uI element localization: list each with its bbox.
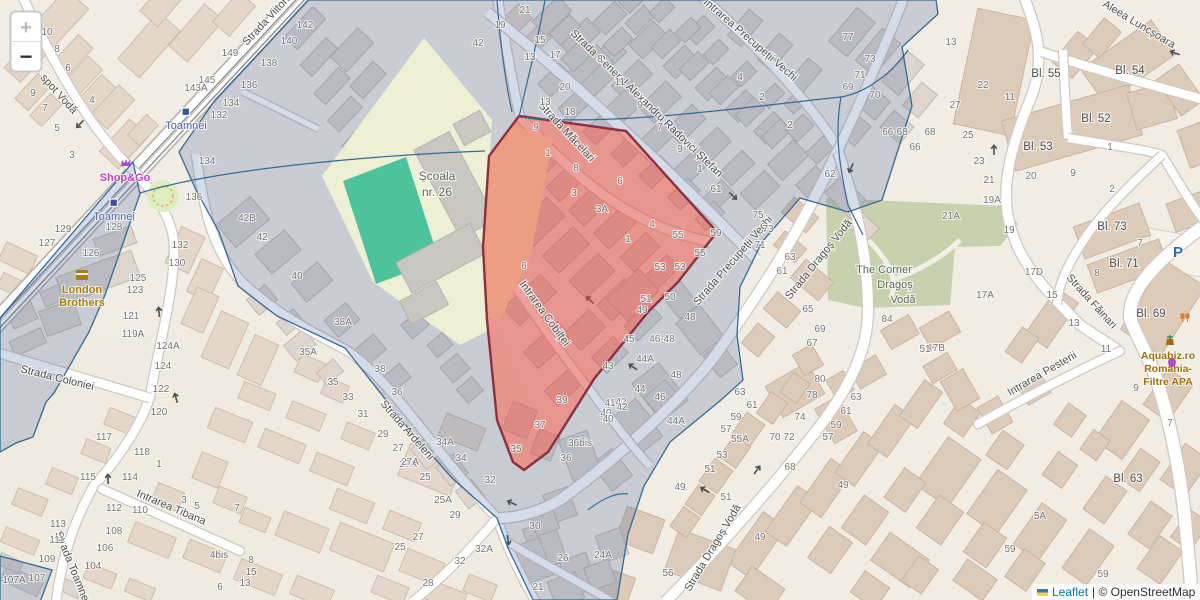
svg-text:53: 53 [674, 262, 686, 273]
svg-text:13: 13 [524, 52, 536, 63]
svg-text:3: 3 [571, 188, 577, 199]
svg-text:49: 49 [674, 482, 686, 493]
svg-text:48: 48 [684, 312, 696, 323]
svg-text:61: 61 [710, 184, 722, 195]
svg-text:117: 117 [96, 432, 112, 443]
svg-text:21A: 21A [942, 211, 960, 222]
svg-text:7: 7 [1167, 418, 1173, 429]
svg-text:11: 11 [1005, 92, 1016, 103]
svg-text:118: 118 [134, 447, 150, 458]
svg-text:40: 40 [291, 271, 303, 282]
svg-text:55A: 55A [731, 434, 749, 445]
svg-text:2: 2 [787, 120, 793, 131]
svg-text:143A: 143A [184, 83, 208, 94]
svg-text:13: 13 [1068, 318, 1080, 329]
svg-text:36: 36 [391, 387, 403, 398]
svg-text:27: 27 [412, 532, 424, 543]
svg-text:104: 104 [85, 561, 102, 572]
svg-text:140: 140 [281, 36, 298, 47]
svg-text:2: 2 [759, 92, 765, 103]
svg-text:33: 33 [342, 392, 354, 403]
svg-text:38A: 38A [334, 317, 352, 328]
svg-text:Bl. 63: Bl. 63 [1113, 473, 1142, 485]
svg-text:20: 20 [559, 82, 571, 93]
svg-text:9: 9 [1133, 383, 1139, 394]
svg-text:10: 10 [41, 27, 53, 38]
svg-text:43: 43 [602, 361, 614, 372]
svg-text:nr. 26: nr. 26 [422, 185, 452, 199]
svg-text:132: 132 [211, 110, 228, 121]
svg-text:24A: 24A [594, 550, 612, 561]
svg-text:Leaflet: Leaflet [1052, 585, 1089, 599]
svg-text:19A: 19A [983, 195, 1001, 206]
svg-text:Romania-: Romania- [1144, 363, 1192, 375]
svg-text:69: 69 [814, 324, 826, 335]
svg-text:66: 66 [909, 142, 921, 153]
svg-text:19: 19 [494, 20, 506, 31]
svg-text:31: 31 [357, 409, 369, 420]
svg-text:Bl. 54: Bl. 54 [1115, 65, 1145, 77]
svg-text:17D: 17D [1025, 267, 1043, 278]
svg-text:4: 4 [737, 72, 743, 83]
svg-text:129: 129 [55, 224, 72, 235]
svg-text:25A: 25A [434, 495, 452, 506]
svg-text:21: 21 [983, 175, 995, 186]
svg-text:7: 7 [42, 103, 48, 114]
svg-text:73: 73 [864, 54, 876, 65]
svg-text:113: 113 [50, 519, 66, 530]
svg-text:9: 9 [1070, 168, 1076, 179]
svg-text:7: 7 [1137, 238, 1143, 249]
svg-text:9: 9 [30, 88, 36, 99]
svg-text:122: 122 [153, 384, 170, 395]
svg-text:59: 59 [1004, 544, 1016, 555]
svg-text:1: 1 [625, 234, 631, 245]
svg-text:Bl. 73: Bl. 73 [1097, 221, 1126, 233]
svg-text:22: 22 [977, 80, 989, 91]
svg-text:51: 51 [919, 344, 931, 355]
svg-text:130: 130 [169, 258, 186, 269]
svg-text:1: 1 [545, 148, 551, 159]
svg-text:70: 70 [869, 90, 881, 101]
svg-text:3: 3 [69, 150, 75, 161]
svg-text:39: 39 [556, 395, 568, 406]
svg-text:149: 149 [222, 48, 239, 59]
svg-text:136: 136 [241, 80, 258, 91]
svg-text:Brothers: Brothers [59, 297, 105, 309]
svg-text:1: 1 [156, 459, 162, 470]
svg-text:111: 111 [49, 535, 65, 546]
svg-text:8: 8 [573, 163, 579, 174]
svg-text:Dragoș: Dragoș [877, 279, 913, 291]
svg-text:59: 59 [730, 412, 742, 423]
svg-text:37: 37 [534, 420, 546, 431]
svg-text:8: 8 [248, 555, 254, 566]
svg-text:25: 25 [962, 130, 974, 141]
svg-text:63: 63 [734, 387, 746, 398]
svg-text:29: 29 [377, 429, 389, 440]
svg-text:123: 123 [127, 285, 144, 296]
svg-text:7: 7 [234, 503, 240, 514]
svg-text:138: 138 [261, 58, 278, 69]
svg-text:4: 4 [89, 95, 95, 106]
svg-text:44A: 44A [667, 416, 685, 427]
svg-text:46: 46 [654, 392, 666, 403]
svg-text:136: 136 [186, 192, 203, 203]
svg-text:Bl. 71: Bl. 71 [1109, 258, 1138, 270]
svg-text:18: 18 [564, 107, 576, 118]
svg-text:142: 142 [297, 20, 314, 31]
svg-text:−: − [20, 44, 33, 69]
svg-text:124: 124 [155, 361, 172, 372]
svg-text:2: 2 [1109, 184, 1115, 195]
svg-text:50: 50 [664, 292, 676, 303]
svg-text:134: 134 [199, 156, 216, 167]
svg-text:34A: 34A [436, 437, 454, 448]
svg-text:46-48: 46-48 [649, 334, 675, 345]
svg-text:Bl. 52: Bl. 52 [1081, 113, 1110, 125]
svg-text:42: 42 [472, 38, 484, 49]
svg-text:5: 5 [194, 501, 200, 512]
svg-text:106: 106 [97, 543, 114, 554]
svg-text:1: 1 [697, 164, 703, 175]
svg-text:121: 121 [123, 311, 140, 322]
svg-text:27: 27 [949, 100, 961, 111]
svg-text:The Corner: The Corner [856, 264, 912, 276]
svg-text:55: 55 [672, 230, 684, 241]
svg-text:29: 29 [449, 510, 461, 521]
svg-text:107: 107 [29, 573, 46, 584]
svg-text:45: 45 [623, 334, 635, 345]
svg-text:11: 11 [1101, 344, 1112, 355]
svg-text:8: 8 [54, 44, 60, 55]
svg-text:77: 77 [842, 32, 854, 43]
svg-text:17: 17 [549, 50, 561, 61]
svg-text:61: 61 [840, 406, 852, 417]
svg-text:Școala: Școala [419, 169, 456, 183]
svg-text:P: P [1173, 244, 1183, 261]
svg-text:32: 32 [484, 475, 496, 486]
svg-text:49: 49 [837, 480, 849, 491]
svg-text:3A: 3A [596, 204, 609, 215]
svg-text:63: 63 [850, 392, 862, 403]
svg-text:125: 125 [130, 273, 147, 284]
svg-text:68: 68 [784, 462, 796, 473]
svg-text:134: 134 [223, 98, 240, 109]
svg-text:Bl. 53: Bl. 53 [1023, 141, 1052, 153]
svg-text:Aquabiz.ro: Aquabiz.ro [1141, 350, 1195, 362]
svg-text:Vodă: Vodă [890, 294, 916, 306]
svg-text:1: 1 [1107, 142, 1113, 153]
svg-text:5A: 5A [1034, 511, 1047, 522]
svg-text:110: 110 [132, 505, 148, 516]
svg-text:59: 59 [1097, 569, 1109, 580]
svg-text:36bis: 36bis [568, 438, 592, 449]
svg-text:59: 59 [710, 228, 722, 239]
svg-text:38: 38 [374, 364, 386, 375]
svg-text:Filtre APA: Filtre APA [1143, 376, 1193, 388]
svg-text:5: 5 [54, 123, 60, 134]
svg-text:35: 35 [510, 444, 522, 455]
svg-text:15: 15 [1046, 290, 1058, 301]
svg-text:70 72: 70 72 [769, 432, 794, 443]
svg-text:3: 3 [181, 495, 187, 506]
svg-text:27A: 27A [401, 457, 419, 468]
svg-text:42B: 42B [238, 213, 256, 224]
svg-text:34: 34 [455, 453, 467, 464]
svg-text:9: 9 [677, 144, 683, 155]
svg-text:128: 128 [106, 222, 123, 233]
svg-text:61: 61 [776, 266, 788, 277]
svg-text:49: 49 [754, 532, 766, 543]
svg-text:78: 78 [806, 390, 818, 401]
svg-text:126: 126 [83, 248, 100, 259]
svg-text:Toamnei: Toamnei [165, 120, 207, 132]
svg-text:35A: 35A [299, 347, 317, 358]
svg-text:41: 41 [604, 398, 616, 409]
svg-text:107A: 107A [2, 575, 26, 586]
svg-text:108: 108 [106, 526, 123, 537]
svg-text:26: 26 [557, 553, 569, 564]
svg-text:42: 42 [256, 232, 268, 243]
svg-text:75: 75 [752, 210, 764, 221]
svg-text:8: 8 [1094, 268, 1100, 279]
svg-text:6: 6 [521, 261, 527, 272]
svg-text:4: 4 [649, 219, 655, 230]
svg-text:127: 127 [39, 238, 56, 249]
svg-text:9: 9 [533, 122, 539, 133]
svg-text:51: 51 [640, 294, 652, 305]
svg-text:| © OpenStreetMap: | © OpenStreetMap [1092, 585, 1196, 599]
svg-text:15: 15 [534, 35, 546, 46]
svg-text:124A: 124A [156, 341, 180, 352]
svg-text:51: 51 [720, 492, 732, 503]
svg-text:66-68: 66-68 [882, 127, 908, 138]
svg-text:32A: 32A [475, 544, 493, 555]
svg-text:44: 44 [634, 384, 646, 395]
svg-text:53: 53 [654, 262, 666, 273]
svg-text:London: London [62, 284, 103, 296]
svg-text:25: 25 [419, 472, 431, 483]
svg-text:67: 67 [806, 338, 818, 349]
svg-text:112: 112 [106, 503, 122, 514]
svg-text:65: 65 [802, 304, 814, 315]
svg-text:74: 74 [794, 412, 806, 423]
svg-text:71: 71 [754, 240, 766, 251]
svg-text:Bl. 69: Bl. 69 [1136, 308, 1165, 320]
svg-text:21: 21 [532, 582, 544, 593]
svg-text:119A: 119A [122, 329, 145, 340]
svg-text:Bl. 55: Bl. 55 [1031, 68, 1060, 80]
svg-text:13: 13 [945, 37, 957, 48]
svg-text:73: 73 [762, 224, 774, 235]
svg-text:51: 51 [704, 464, 716, 475]
svg-text:120: 120 [151, 407, 168, 418]
svg-text:7: 7 [657, 122, 663, 133]
svg-text:6: 6 [65, 63, 71, 74]
svg-text:48: 48 [670, 370, 682, 381]
svg-text:19: 19 [1003, 225, 1015, 236]
svg-text:21: 21 [519, 5, 531, 16]
svg-text:42: 42 [616, 402, 628, 413]
svg-text:69: 69 [842, 82, 854, 93]
svg-text:9: 9 [637, 100, 643, 111]
svg-text:36: 36 [560, 453, 572, 464]
svg-text:35: 35 [327, 377, 339, 388]
svg-text:6: 6 [217, 582, 223, 593]
svg-text:63: 63 [784, 252, 796, 263]
svg-text:11: 11 [615, 77, 626, 88]
svg-text:59: 59 [830, 420, 842, 431]
svg-text:28: 28 [422, 578, 434, 589]
svg-text:Shop&Go: Shop&Go [100, 172, 151, 184]
svg-text:15: 15 [245, 567, 257, 578]
svg-text:114: 114 [122, 472, 138, 483]
svg-text:56: 56 [662, 568, 674, 579]
svg-text:109: 109 [39, 554, 56, 565]
svg-text:84: 84 [881, 314, 893, 325]
svg-text:30: 30 [529, 521, 541, 532]
svg-text:13: 13 [239, 578, 251, 589]
svg-text:61: 61 [746, 400, 758, 411]
svg-text:115: 115 [80, 472, 96, 483]
svg-text:20: 20 [1025, 171, 1037, 182]
svg-text:49: 49 [636, 305, 648, 316]
svg-text:23: 23 [973, 156, 985, 167]
svg-text:62: 62 [824, 169, 836, 180]
svg-text:17A: 17A [976, 290, 994, 301]
svg-text:6: 6 [617, 176, 623, 187]
svg-text:132: 132 [172, 240, 189, 251]
svg-text:71: 71 [854, 70, 866, 81]
svg-text:4bis: 4bis [210, 550, 228, 561]
svg-text:44A: 44A [636, 354, 654, 365]
svg-text:8: 8 [597, 54, 603, 65]
svg-text:55: 55 [694, 248, 706, 259]
svg-text:32: 32 [454, 556, 466, 567]
svg-text:53: 53 [716, 450, 728, 461]
svg-text:40: 40 [602, 414, 614, 425]
svg-text:68: 68 [924, 127, 936, 138]
svg-text:80: 80 [814, 374, 826, 385]
svg-text:27: 27 [392, 443, 404, 454]
svg-text:13: 13 [539, 97, 551, 108]
svg-text:25: 25 [394, 542, 406, 553]
svg-text:+: + [20, 17, 32, 39]
svg-text:57: 57 [822, 432, 834, 443]
